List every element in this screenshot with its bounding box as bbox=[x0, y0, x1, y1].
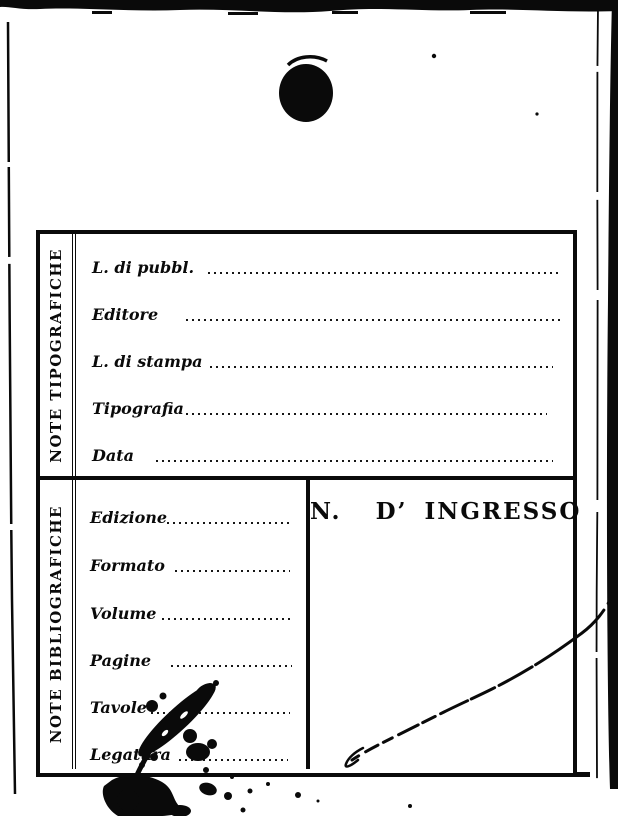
numero-ingresso-box: N. D’ INGRESSO bbox=[310, 480, 581, 769]
right-scan-line bbox=[597, 6, 598, 782]
field-row-legatura: Legatura bbox=[90, 743, 288, 765]
dotted-fill-line bbox=[208, 272, 561, 274]
field-row-luogo-pubblicazione: L. di pubbl. bbox=[92, 256, 561, 278]
dotted-fill-line bbox=[186, 413, 547, 415]
field-row-data: Data bbox=[92, 444, 553, 466]
bibliografiche-fields: Edizione Formato Volume Pagine Tavole bbox=[76, 480, 306, 769]
field-label: Tipografia bbox=[92, 399, 184, 419]
dotted-fill-line bbox=[210, 366, 553, 368]
card-table: NOTE TIPOGRAFICHE L. di pubbl. Editore L… bbox=[36, 230, 577, 777]
right-scan-edge bbox=[597, 0, 618, 789]
field-label: Legatura bbox=[90, 745, 171, 765]
speck bbox=[432, 54, 436, 58]
dotted-fill-line bbox=[162, 618, 294, 620]
field-row-pagine: Pagine bbox=[90, 649, 292, 671]
field-label: Pagine bbox=[90, 651, 151, 671]
speck bbox=[535, 112, 538, 115]
hole-punch bbox=[279, 57, 333, 122]
tipografiche-fields: L. di pubbl. Editore L. di stampa Tipogr… bbox=[76, 234, 573, 476]
field-label: Data bbox=[92, 446, 134, 466]
side-label-tipografiche: NOTE TIPOGRAFICHE bbox=[40, 234, 76, 476]
scanned-library-card: NOTE TIPOGRAFICHE L. di pubbl. Editore L… bbox=[0, 0, 618, 816]
left-scan-line bbox=[8, 22, 15, 794]
dotted-fill-line bbox=[186, 319, 563, 321]
field-row-editore: Editore bbox=[92, 303, 563, 325]
dotted-fill-line bbox=[179, 759, 288, 761]
field-label: L. di stampa bbox=[92, 352, 202, 372]
side-label-tipografiche-text: NOTE TIPOGRAFICHE bbox=[47, 248, 65, 463]
side-label-bibliografiche: NOTE BIBLIOGRAFICHE bbox=[40, 480, 76, 769]
field-row-volume: Volume bbox=[90, 602, 294, 624]
field-row-tavole: Tavole bbox=[90, 696, 290, 718]
field-label: Tavole bbox=[90, 698, 147, 718]
field-row-luogo-stampa: L. di stampa bbox=[92, 350, 553, 372]
top-scan-edge bbox=[0, 0, 618, 15]
punch-crescent bbox=[288, 57, 327, 65]
field-row-edizione: Edizione bbox=[90, 506, 292, 528]
field-label: Volume bbox=[90, 604, 156, 624]
dotted-fill-line bbox=[156, 460, 553, 462]
section-note-bibliografiche: NOTE BIBLIOGRAFICHE Edizione Formato Vol… bbox=[40, 480, 573, 769]
field-label: L. di pubbl. bbox=[92, 258, 194, 278]
section-note-tipografiche: NOTE TIPOGRAFICHE L. di pubbl. Editore L… bbox=[40, 234, 573, 480]
side-label-bibliografiche-text: NOTE BIBLIOGRAFICHE bbox=[47, 505, 65, 743]
field-label: Edizione bbox=[90, 508, 167, 528]
field-label: Formato bbox=[90, 556, 165, 576]
field-row-tipografia: Tipografia bbox=[92, 397, 547, 419]
field-row-formato: Formato bbox=[90, 554, 290, 576]
dotted-fill-line bbox=[171, 665, 292, 667]
dotted-fill-line bbox=[167, 522, 292, 524]
dotted-fill-line bbox=[151, 712, 290, 714]
numero-ingresso-heading: N. D’ INGRESSO bbox=[310, 498, 581, 525]
field-label: Editore bbox=[92, 305, 158, 325]
dotted-fill-line bbox=[175, 570, 290, 572]
